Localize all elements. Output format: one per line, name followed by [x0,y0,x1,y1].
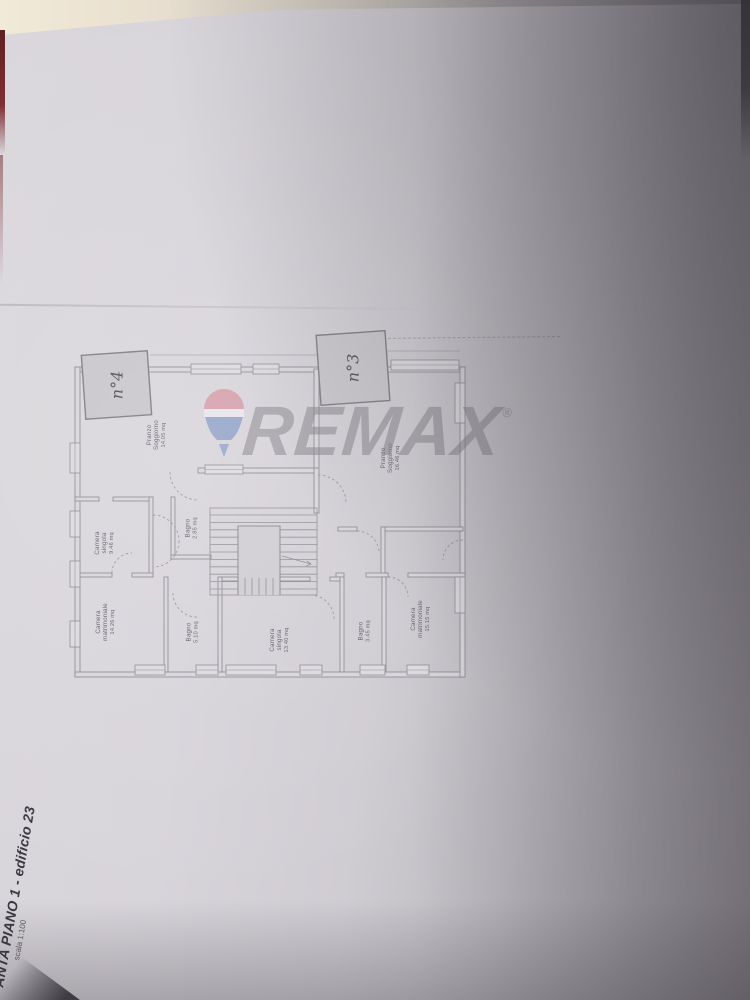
svg-text:16.46 mq: 16.46 mq [395,446,401,471]
svg-text:Camera: Camera [269,628,276,652]
svg-text:singola: singola [101,532,108,553]
floor-plan: n°4 n°3 Pranzo Soggiorno 14.05 mq Camera… [55,325,485,710]
svg-text:15.15 mq: 15.15 mq [425,607,431,632]
svg-text:5.10 mq: 5.10 mq [194,621,200,643]
unit3-marker: n°3 [316,331,390,406]
room-label-camera-matrimoniale-left: Camera matrimoniale 14.26 mq [95,603,116,641]
room-label-soggiorno-right: Pranzo Soggiorno 16.46 mq [380,443,401,473]
svg-text:matrimoniale: matrimoniale [102,603,109,641]
svg-text:Pranzo: Pranzo [146,424,153,445]
photo-right-edge-shadow [741,0,750,160]
svg-text:Camera: Camera [410,607,417,631]
unit4-handwritten-label: n°4 [108,371,127,399]
svg-text:Pranzo: Pranzo [380,447,387,468]
photo-left-edge-mark-2 [0,155,3,285]
svg-text:2.85 mq: 2.85 mq [193,517,199,539]
stairwell [210,508,317,595]
svg-text:13.40 mq: 13.40 mq [284,628,290,653]
unit3-handwritten-label: n°3 [344,354,363,382]
svg-text:Camera: Camera [94,531,101,555]
room-label-camera-singola-left: Camera singola 9.46 mq [94,531,115,555]
svg-text:Bagno: Bagno [186,622,193,641]
room-label-bagno-right: Bagno 3.45 mq [358,620,372,642]
svg-text:Bagno: Bagno [358,621,365,640]
svg-text:matrimoniale: matrimoniale [417,600,424,638]
photo-left-edge-mark [0,30,5,155]
room-label-bagno-left: Bagno 5.10 mq [186,621,200,643]
svg-text:Camera: Camera [95,610,102,634]
room-label-camera-matrimoniale-right: Camera matrimoniale 15.15 mq [410,600,431,638]
svg-text:Soggiorno: Soggiorno [153,420,160,450]
svg-text:3.45 mq: 3.45 mq [366,620,372,642]
svg-text:14.26 mq: 14.26 mq [110,610,116,635]
svg-text:Soggiorno: Soggiorno [387,443,394,473]
svg-text:Bagno: Bagno [185,518,192,537]
svg-text:9.46 mq: 9.46 mq [109,532,115,554]
room-label-bagno-small-left: Bagno 2.85 mq [185,517,199,539]
unit4-marker: n°4 [81,351,151,419]
svg-text:14.05 mq: 14.05 mq [161,423,167,448]
balcony-lines [150,351,460,355]
room-label-soggiorno-left: Pranzo Soggiorno 14.05 mq [146,420,167,450]
room-label-camera-singola-right: Camera singola 13.40 mq [269,628,290,653]
photographed-floorplan-document: n°4 n°3 Pranzo Soggiorno 14.05 mq Camera… [0,0,750,1000]
svg-text:singola: singola [276,629,283,650]
